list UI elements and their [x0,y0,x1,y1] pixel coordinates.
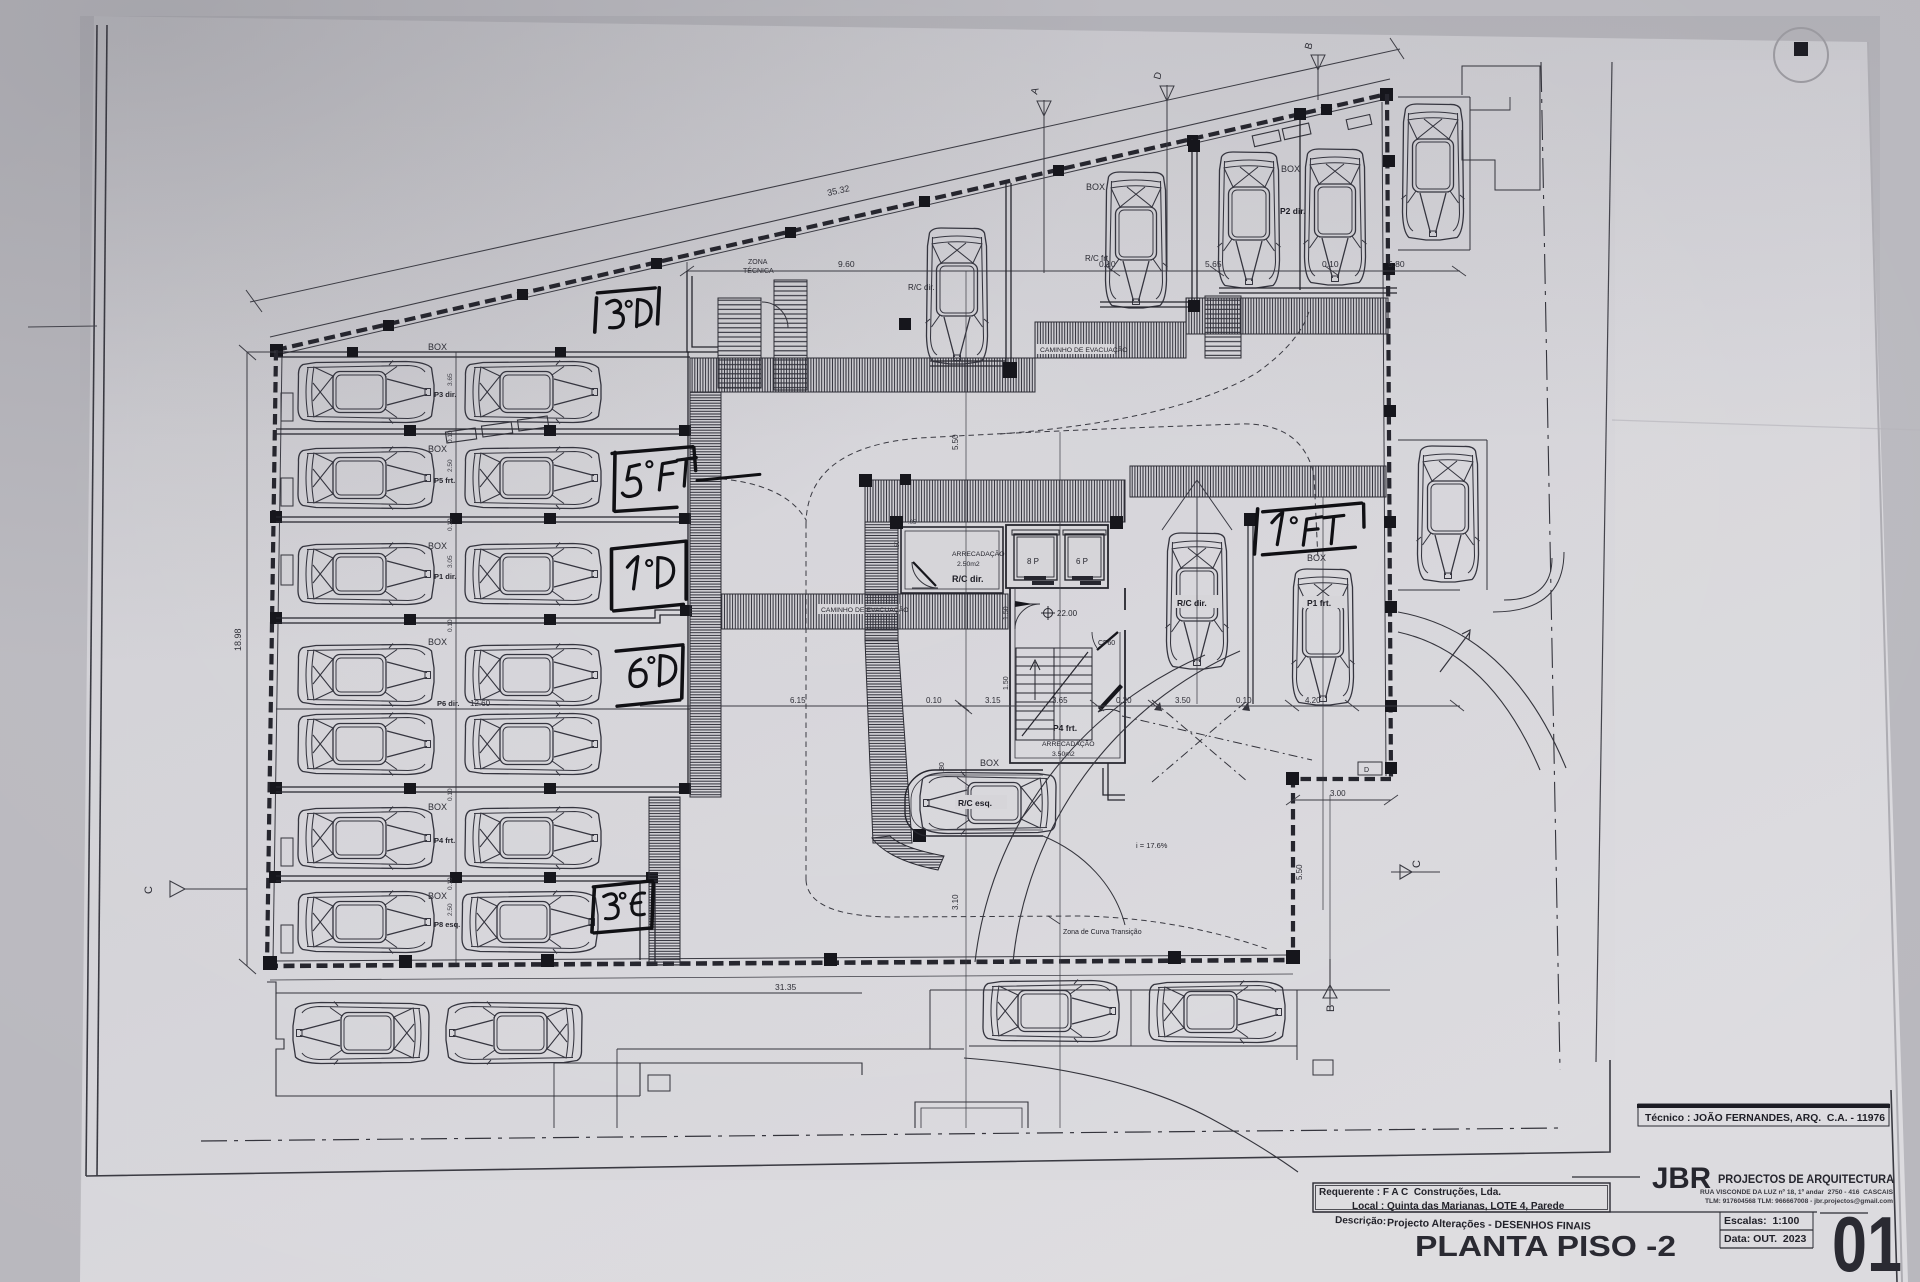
svg-text:3.65: 3.65 [447,373,454,386]
svg-text:R/C dir.: R/C dir. [952,574,984,584]
svg-text:BOX: BOX [428,802,447,812]
svg-text:4.20: 4.20 [1305,696,1321,705]
svg-text:P5 frt.: P5 frt. [434,476,455,485]
svg-text:PROJECTOS DE ARQUITECTURA: PROJECTOS DE ARQUITECTURA [1718,1174,1894,1186]
svg-text:1.50: 1.50 [1003,676,1010,690]
svg-text:31.35: 31.35 [775,982,797,992]
svg-text:P1 frt.: P1 frt. [1307,598,1331,608]
svg-text:Zona de Curva Transição: Zona de Curva Transição [1063,929,1142,936]
svg-text:R/C esq.: R/C esq. [958,798,992,808]
svg-text:Descrição:: Descrição: [1335,1215,1386,1227]
svg-text:0.10: 0.10 [447,430,454,443]
svg-text:P3 dir.: P3 dir. [434,390,457,399]
svg-text:1.50: 1.50 [1003,606,1010,620]
svg-text:BOX: BOX [428,342,447,352]
svg-text:0.10: 0.10 [447,518,454,531]
svg-text:2.50m2: 2.50m2 [957,561,980,568]
svg-text:Data: OUT. 2023: Data: OUT. 2023 [1724,1233,1806,1245]
svg-text:6.15: 6.15 [790,696,806,705]
svg-text:R/C frt: R/C frt [1085,254,1109,263]
svg-text:8 P: 8 P [1027,557,1039,566]
svg-text:3.10: 3.10 [951,894,960,910]
svg-text:BOX: BOX [980,758,999,768]
svg-text:i = 17.6%: i = 17.6% [1136,841,1168,850]
svg-text:3.15: 3.15 [985,696,1001,705]
svg-text:R/C dir.: R/C dir. [1177,598,1207,608]
svg-text:0.10: 0.10 [447,619,454,632]
svg-text:ARRECADAÇÃO: ARRECADAÇÃO [1042,739,1095,748]
svg-text:.50: .50 [895,540,901,549]
svg-text:B: B [1325,1005,1337,1012]
svg-text:PLANTA PISO -2: PLANTA PISO -2 [1415,1231,1676,1263]
svg-text:0.10: 0.10 [1236,696,1252,705]
svg-text:Técnico : JOÃO FERNANDES, ARQ.: Técnico : JOÃO FERNANDES, ARQ. C.A. - 11… [1645,1111,1885,1124]
svg-text:6 P: 6 P [1076,557,1088,566]
svg-text:P2 dir.: P2 dir. [1280,206,1306,216]
svg-text:P4 frt.: P4 frt. [434,836,455,845]
svg-text:3.05: 3.05 [447,555,454,568]
svg-text:5.80: 5.80 [1388,259,1405,269]
svg-text:P8 esq.: P8 esq. [434,920,460,929]
svg-text:BOX: BOX [428,637,447,647]
svg-text:Escalas: 1:100: Escalas: 1:100 [1724,1215,1799,1227]
svg-text:Local : Quinta das Marianas, L: Local : Quinta das Marianas, LOTE 4, Par… [1352,1201,1565,1212]
svg-text:ZONA: ZONA [748,259,768,266]
svg-text:C: C [1411,860,1423,868]
svg-text:3.50: 3.50 [1175,696,1191,705]
svg-text:P6 dir.: P6 dir. [437,699,460,708]
svg-text:BOX: BOX [1086,182,1105,192]
svg-text:ARRECADAÇÃO: ARRECADAÇÃO [952,549,1005,558]
svg-text:0.10: 0.10 [447,877,454,890]
svg-text:3.00: 3.00 [1330,789,1346,798]
svg-text:TÉCNICA: TÉCNICA [743,266,774,275]
svg-text:18.98: 18.98 [233,628,243,651]
svg-text:BOX: BOX [428,444,447,454]
svg-text:D: D [1364,767,1369,774]
svg-text:2.50: 2.50 [447,459,454,472]
svg-text:CF60: CF60 [1098,640,1115,647]
svg-text:0.10: 0.10 [447,788,454,801]
svg-text:Requerente : F A C Construçõe: Requerente : F A C Construções, Lda. [1319,1187,1501,1198]
svg-text:2.50: 2.50 [447,903,454,916]
svg-text:P1 dir.: P1 dir. [434,572,457,581]
svg-text:R/C dir.: R/C dir. [908,283,935,292]
svg-text:5.50: 5.50 [1295,864,1304,880]
svg-text:RUA VISCONDE DA LUZ nº 18, 1º: RUA VISCONDE DA LUZ nº 18, 1º andar 2750… [1700,1189,1893,1196]
svg-text:BOX: BOX [1281,164,1300,174]
svg-text:CAMINHO DE EVACUAÇÃO: CAMINHO DE EVACUAÇÃO [1040,345,1128,354]
svg-text:3.50m2: 3.50m2 [1052,751,1075,758]
svg-text:BOX: BOX [428,891,447,901]
svg-text:01: 01 [1832,1200,1902,1282]
svg-text:.05: .05 [908,520,917,526]
svg-text:P4 frt.: P4 frt. [1053,723,1077,733]
svg-text:9.60: 9.60 [838,259,855,269]
svg-text:0.10: 0.10 [926,696,942,705]
svg-text:C: C [143,886,155,894]
